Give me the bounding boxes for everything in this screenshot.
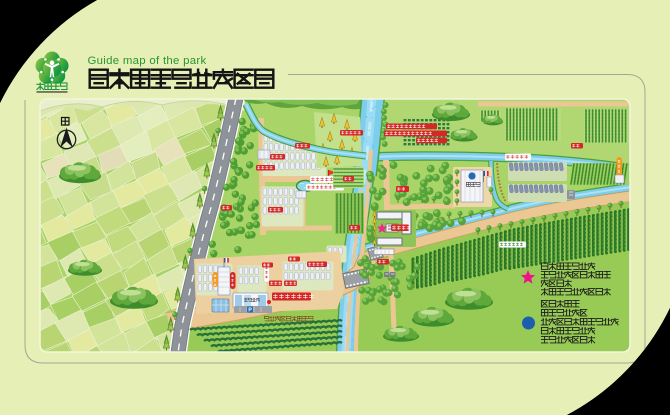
svg-text:Guide map of the park: Guide map of the park	[88, 55, 207, 67]
svg-text:P: P	[248, 307, 252, 313]
